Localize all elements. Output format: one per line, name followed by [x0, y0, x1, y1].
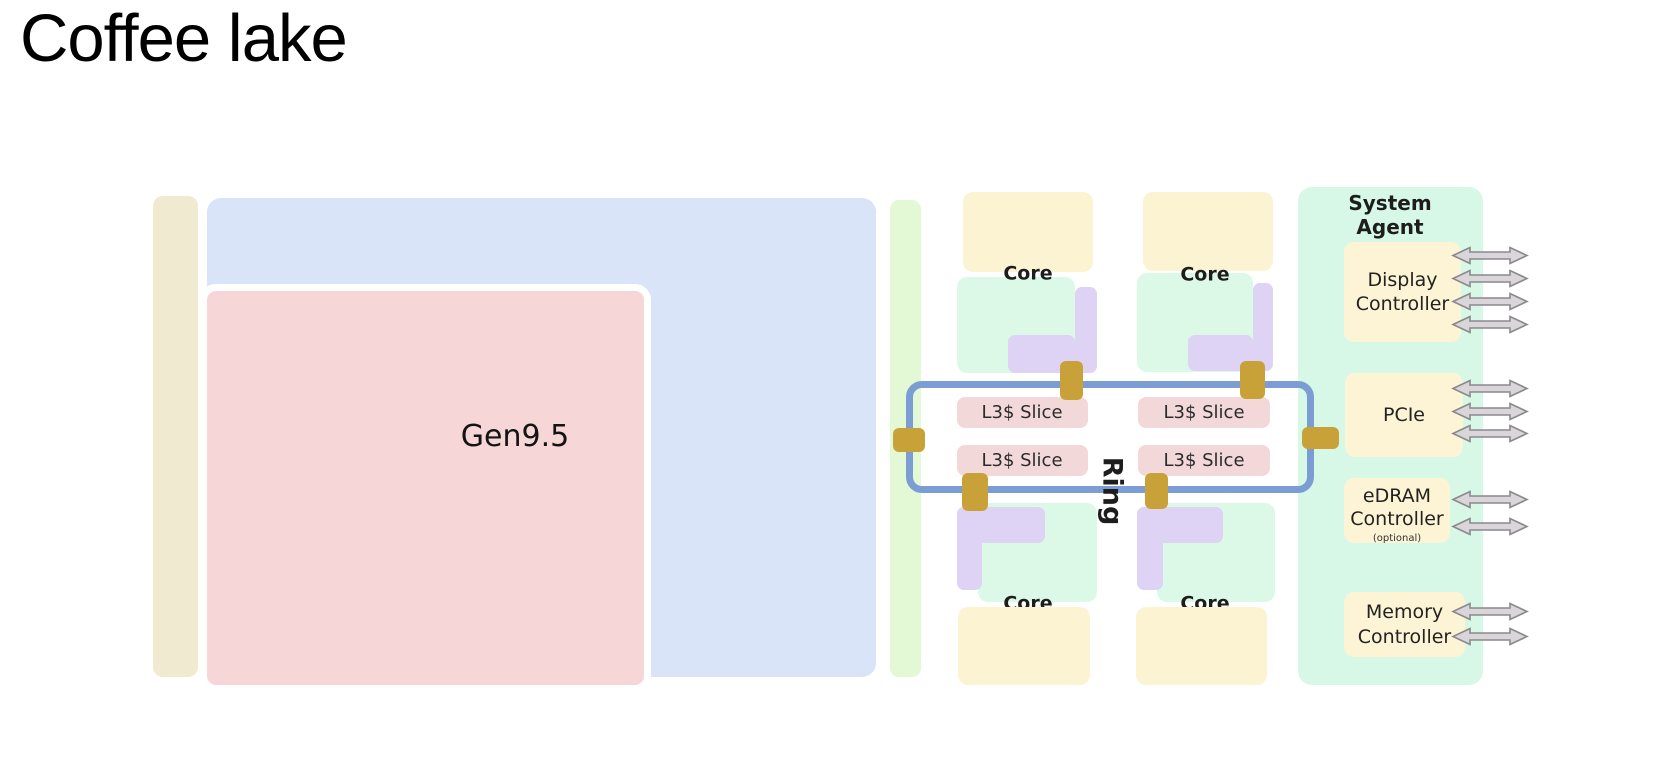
bidirectional-arrow-icon — [1451, 490, 1529, 509]
page-title: Coffee lake — [20, 2, 347, 76]
ring-stop-bottom-right — [1145, 473, 1168, 509]
pcie-label: PCIe — [1383, 403, 1425, 427]
core-block-bottom-right — [1136, 607, 1267, 685]
ring-stop-top-right — [1240, 361, 1265, 399]
core-cache-l-vertical-top-left — [1075, 287, 1097, 373]
l3-slice-label-top-left: L3$ Slice — [981, 404, 1062, 422]
display-controller-block: Display Controller — [1344, 242, 1461, 342]
edram-controller-label: eDRAM Controller — [1350, 485, 1443, 531]
bidirectional-arrow-icon — [1451, 246, 1529, 265]
edram-controller-block: eDRAM Controller (optional) — [1344, 478, 1450, 543]
bidirectional-arrow-icon — [1451, 424, 1529, 443]
bidirectional-arrow-icon — [1451, 315, 1529, 334]
ring-stop-left-mid — [893, 428, 925, 452]
core-cache-l-horizontal-bottom-right — [1137, 507, 1223, 543]
l3-slice-label-top-right: L3$ Slice — [1163, 404, 1244, 422]
core-cache-l-horizontal-bottom-left — [957, 507, 1045, 543]
pcie-arrows — [1451, 379, 1529, 443]
core-block-top-left — [963, 192, 1093, 272]
gpu-label: Gen9.5 — [461, 422, 569, 452]
display-controller-label: Display Controller — [1356, 268, 1449, 316]
core-label-top-left: Core — [1003, 265, 1052, 284]
bidirectional-arrow-icon — [1451, 292, 1529, 311]
edram-controller-arrows — [1451, 490, 1529, 536]
ring-stop-bottom-left — [962, 473, 988, 511]
l3-slice-label-bottom-left: L3$ Slice — [981, 452, 1062, 470]
bidirectional-arrow-icon — [1451, 627, 1529, 646]
ring-stop-top-left — [1060, 361, 1083, 400]
pcie-block: PCIe — [1345, 373, 1463, 457]
die-edge-strip — [153, 196, 198, 677]
display-controller-arrows — [1451, 246, 1529, 334]
core-label-top-right: Core — [1180, 266, 1229, 285]
l3-slice-label-bottom-right: L3$ Slice — [1163, 452, 1244, 470]
bidirectional-arrow-icon — [1451, 379, 1529, 398]
ring-stop-right-mid — [1302, 427, 1339, 449]
bidirectional-arrow-icon — [1451, 269, 1529, 288]
memory-controller-label: Memory Controller — [1358, 600, 1451, 650]
core-block-bottom-left — [958, 607, 1090, 685]
core-cache-l-vertical-top-right — [1253, 283, 1273, 371]
core-block-top-right — [1143, 192, 1273, 271]
bidirectional-arrow-icon — [1451, 402, 1529, 421]
gen9-gpu-block — [200, 284, 651, 692]
ring-label: Ring — [1099, 457, 1126, 526]
system-agent-title: System Agent — [1348, 191, 1431, 239]
memory-controller-arrows — [1451, 602, 1529, 646]
bidirectional-arrow-icon — [1451, 602, 1529, 621]
bidirectional-arrow-icon — [1451, 517, 1529, 536]
memory-controller-block: Memory Controller — [1344, 592, 1465, 657]
coffee-lake-die-diagram: Coffee lake Gen9.5 System Agent Core Cor… — [0, 0, 1658, 784]
edram-optional-note: (optional) — [1373, 533, 1421, 544]
